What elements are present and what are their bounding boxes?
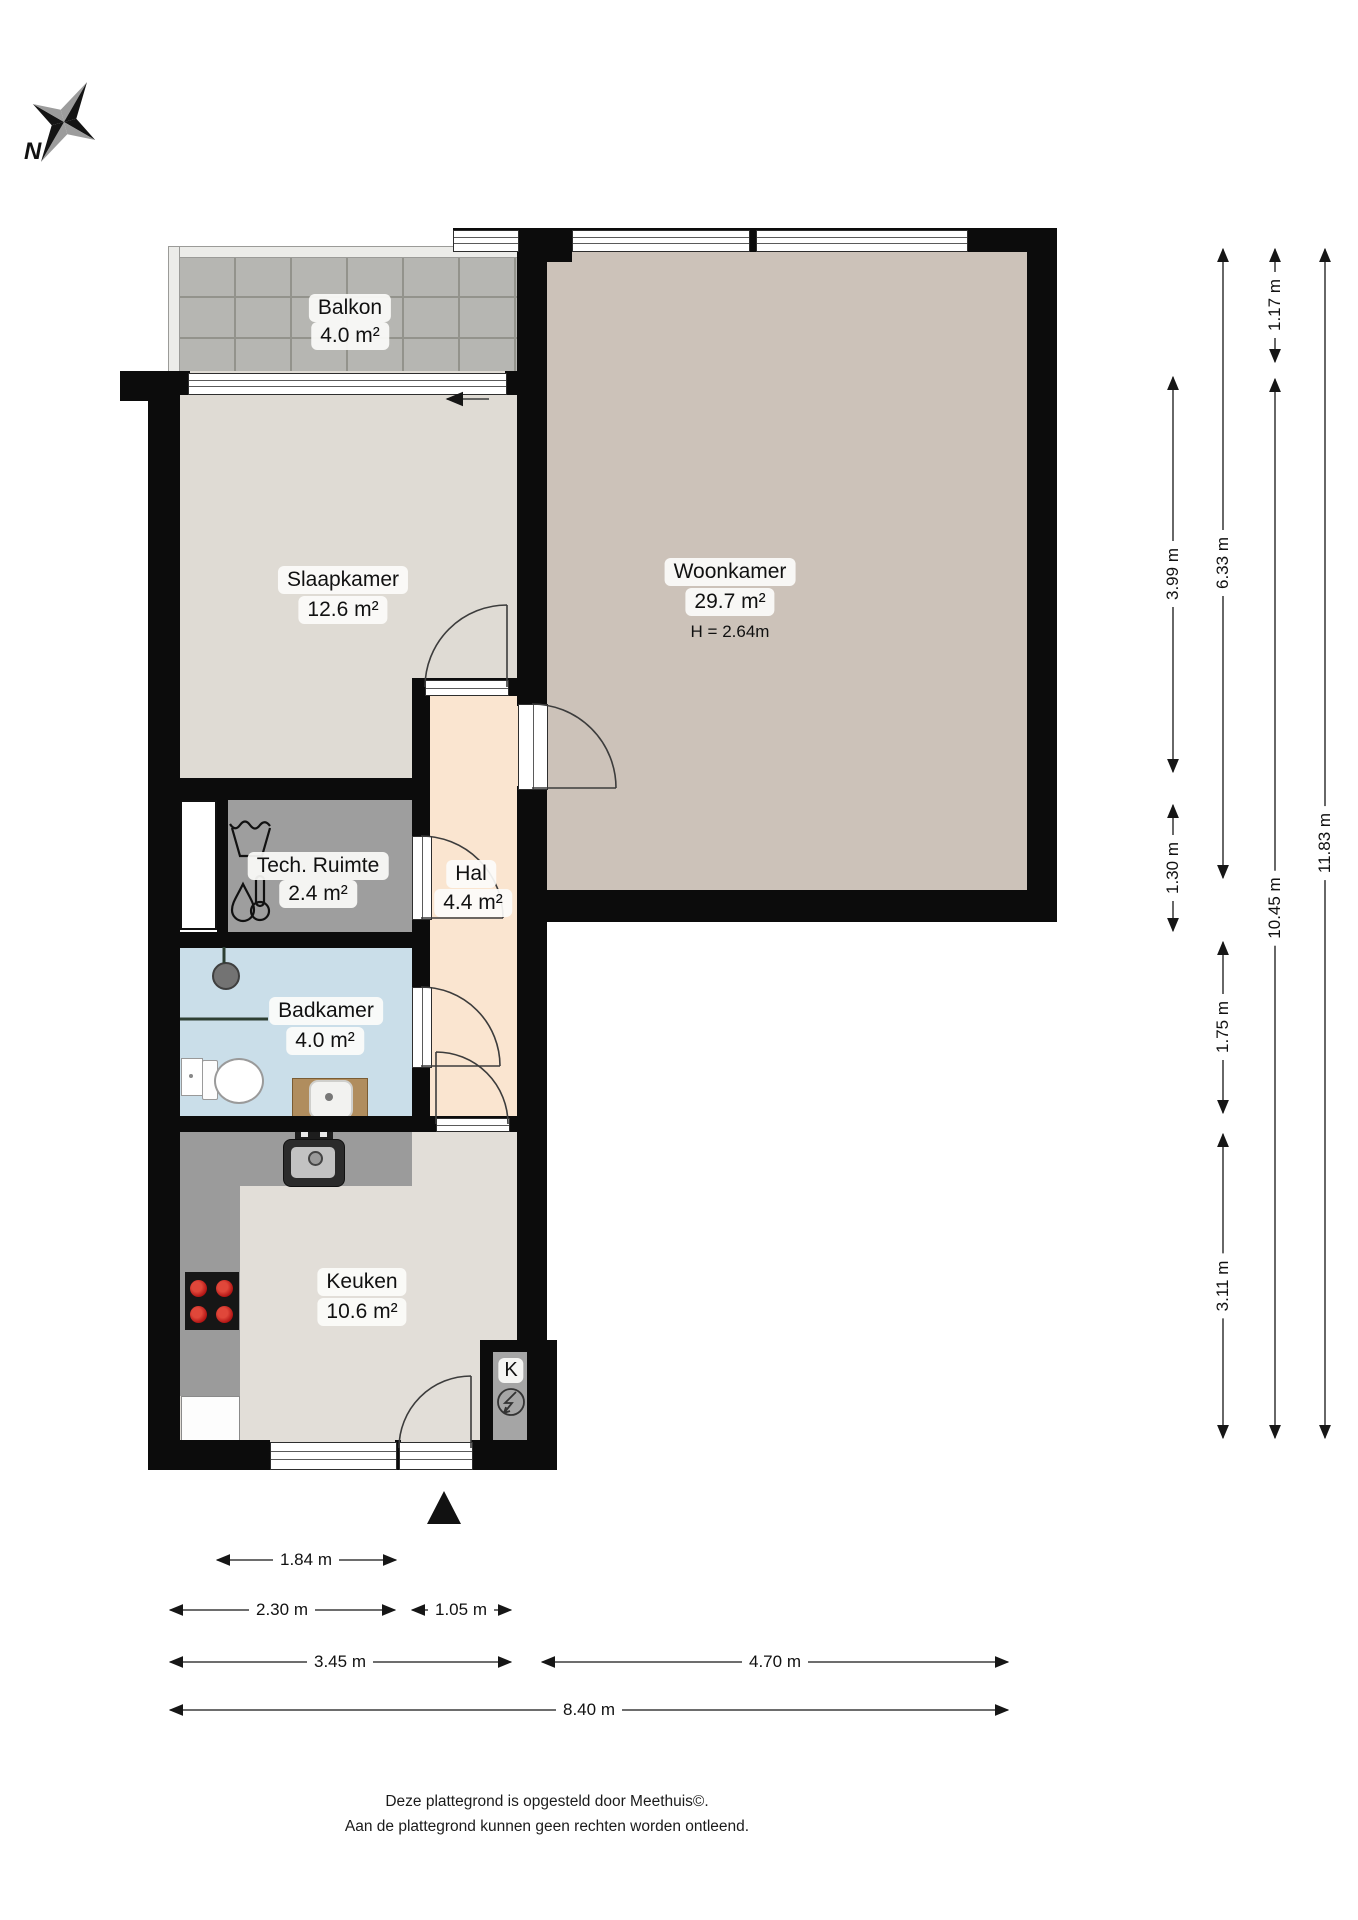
door-frame-badkamer xyxy=(412,987,432,1068)
stove-burner xyxy=(216,1306,233,1323)
room-area-tech-ruimte: 2.4 m² xyxy=(279,880,357,908)
dim-label-2-30: 2.30 m xyxy=(249,1600,315,1620)
dim-label-1-30: 1.30 m xyxy=(1163,835,1183,901)
wall xyxy=(412,918,430,987)
room-area-badkamer: 4.0 m² xyxy=(286,1027,364,1055)
room-label-tech-ruimte: Tech. Ruimte xyxy=(248,852,389,880)
wall xyxy=(517,786,547,922)
wall xyxy=(148,1440,270,1470)
wall xyxy=(517,252,547,706)
dim-label-1-75: 1.75 m xyxy=(1213,994,1233,1060)
dim-label-10-45: 10.45 m xyxy=(1265,870,1285,945)
door-frame-woonkamer xyxy=(518,704,548,790)
dimension-lines-horizontal xyxy=(170,1560,1008,1710)
wall xyxy=(148,1116,430,1132)
dim-label-4-70: 4.70 m xyxy=(742,1652,808,1672)
dim-label-11-83: 11.83 m xyxy=(1315,806,1335,880)
room-area-slaapkamer: 12.6 m² xyxy=(298,596,387,624)
window xyxy=(453,230,519,252)
dim-label-6-33: 6.33 m xyxy=(1213,530,1233,596)
room-label-keuken: Keuken xyxy=(317,1268,406,1296)
entrance-door-threshold xyxy=(399,1442,473,1470)
dim-label-8-40: 8.40 m xyxy=(556,1700,622,1720)
window xyxy=(270,1442,397,1470)
kitchen-sink-drain xyxy=(308,1151,323,1166)
footer-line-2: Aan de plattegrond kunnen geen rechten w… xyxy=(345,1815,749,1840)
room-area-woonkamer: 29.7 m² xyxy=(685,588,774,616)
kitchen-faucet-handle xyxy=(301,1132,308,1137)
room-label-badkamer: Badkamer xyxy=(269,997,383,1025)
wall xyxy=(148,371,180,1470)
dim-label-3-99: 3.99 m xyxy=(1163,541,1183,607)
stove-icon xyxy=(185,1272,239,1330)
wall xyxy=(517,922,547,1344)
door-frame-tech-ruimte xyxy=(412,836,432,920)
kitchen-faucet-handle xyxy=(320,1132,327,1137)
wall xyxy=(1027,252,1057,922)
wall xyxy=(148,932,430,948)
balcony-sliding-door xyxy=(188,373,507,395)
room-label-balkon: Balkon xyxy=(309,294,391,322)
entrance-arrow-icon xyxy=(427,1491,461,1524)
slaapkamer-floor xyxy=(178,371,519,700)
window xyxy=(572,230,750,252)
wall xyxy=(120,371,148,401)
door-frame-keuken xyxy=(436,1118,510,1132)
balkon-railing-left xyxy=(168,246,180,377)
cabinet-knob xyxy=(189,1074,193,1078)
room-area-balkon: 4.0 m² xyxy=(311,322,389,350)
footer-line-1: Deze plattegrond is opgesteld door Meeth… xyxy=(345,1790,749,1815)
door-frame-slaapkamer xyxy=(425,680,509,696)
dimension-lines-vertical xyxy=(1173,249,1325,1438)
floorplan-page: { "title_domain": "floorplan", "compass"… xyxy=(0,0,1358,1920)
kitchen-appliance xyxy=(181,1396,240,1443)
wall xyxy=(148,778,430,800)
stove-burner xyxy=(216,1280,233,1297)
window xyxy=(756,230,968,252)
wall xyxy=(412,1066,430,1132)
room-height-woonkamer: H = 2.64m xyxy=(691,622,770,642)
dim-label-1-17: 1.17 m xyxy=(1265,272,1285,338)
footer-attribution: Deze plattegrond is opgesteld door Meeth… xyxy=(345,1790,749,1840)
dim-label-3-45: 3.45 m xyxy=(307,1652,373,1672)
wall xyxy=(217,800,228,932)
shaft xyxy=(180,800,217,930)
toilet-bowl xyxy=(214,1058,264,1104)
stove-burner xyxy=(190,1306,207,1323)
shower-head-icon xyxy=(212,962,240,990)
room-label-woonkamer: Woonkamer xyxy=(665,558,796,586)
wall xyxy=(545,890,1027,922)
meterkast-label: K xyxy=(498,1358,523,1383)
room-area-keuken: 10.6 m² xyxy=(317,1298,406,1326)
slaapkamer-floor xyxy=(178,700,418,790)
room-label-slaapkamer: Slaapkamer xyxy=(278,566,408,594)
wall xyxy=(412,678,430,836)
compass-north-label: N xyxy=(24,138,41,166)
stove-burner xyxy=(190,1280,207,1297)
sink-drain xyxy=(325,1093,333,1101)
room-label-hal: Hal xyxy=(446,860,496,888)
room-area-hal: 4.4 m² xyxy=(434,889,512,917)
dim-label-1-84: 1.84 m xyxy=(273,1550,339,1570)
dim-label-3-11: 3.11 m xyxy=(1213,1254,1233,1319)
dim-label-1-05: 1.05 m xyxy=(428,1600,494,1620)
